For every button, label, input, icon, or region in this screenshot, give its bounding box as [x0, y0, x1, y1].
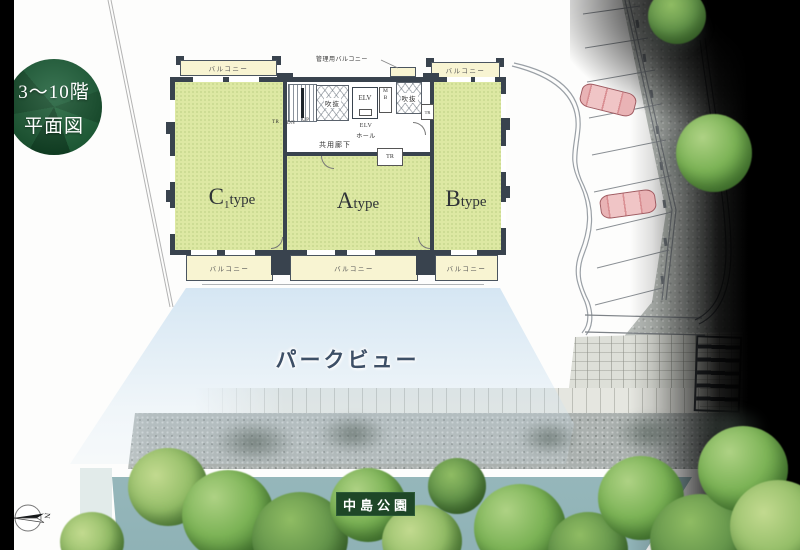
balcony-top-right: バルコニー — [431, 62, 500, 78]
trunk-room-label: TR — [425, 110, 431, 115]
interior-wall — [283, 82, 287, 250]
unit-letter: A — [337, 188, 354, 213]
corridor-wall — [287, 152, 430, 156]
meter-box-label: M — [380, 88, 391, 95]
door-arc — [413, 122, 426, 135]
compass-n-label: N — [42, 512, 52, 519]
elevator-label: ELV — [359, 94, 372, 102]
park-name-badge: 中島公園 — [336, 492, 415, 516]
balcony-label: バルコニー — [210, 263, 250, 273]
trunk-room: TR — [377, 148, 403, 166]
balcony-bottom-a: バルコニー — [290, 255, 418, 281]
floor-badge-line2: 平面図 — [24, 111, 84, 138]
elevator: ELV — [352, 87, 378, 119]
void-label: 吹抜 — [401, 93, 418, 103]
left-edge-matte — [0, 0, 14, 550]
floor-plan: バルコニー バルコニー 管理用バルコニー TR DN UP — [168, 53, 516, 305]
void-atrium: 吹抜 — [316, 85, 349, 121]
corridor-label: 共用廊下 — [303, 140, 367, 150]
balcony-label: バルコニー — [446, 65, 486, 75]
floor-badge-line1: 3〜10階 — [18, 77, 90, 104]
stair-tr-label: TR — [272, 120, 279, 125]
management-balcony — [390, 67, 416, 77]
unit-letter: B — [445, 186, 460, 211]
north-compass-icon: N — [10, 500, 58, 538]
unit-label-c1type: C1type — [185, 184, 279, 211]
balcony-label: バルコニー — [334, 263, 374, 273]
unit-suffix: type — [353, 196, 379, 212]
tree-shadow — [212, 420, 296, 464]
tree-shadow — [518, 420, 580, 456]
elv-hall-label-1: ELV — [345, 123, 387, 129]
balcony-label: バルコニー — [447, 263, 487, 273]
building-outline: TR DN UP 吹抜 吹抜 ELV M B TR ELV — [170, 77, 506, 255]
park-view-label: パークビュー — [250, 344, 445, 374]
site-plan-illustration: パークビュー 中島公園 3〜10階 平面図 N バルコニー バルコニー 管理用バ… — [0, 0, 800, 550]
trunk-room-side: TR — [421, 104, 434, 120]
void-atrium: 吹抜 — [396, 82, 422, 114]
property-boundary-line — [108, 0, 173, 307]
stair-dn-label: DN — [287, 121, 295, 126]
stair-rail — [301, 88, 304, 118]
balcony-label: バルコニー — [209, 63, 249, 73]
elv-hall-label-2: ホール — [345, 131, 387, 140]
meter-box: M B — [379, 87, 392, 113]
tree — [676, 114, 752, 192]
trunk-room-label: TR — [386, 154, 394, 160]
balcony-bottom-c1: バルコニー — [186, 255, 273, 281]
unit-c1type-room — [175, 82, 283, 250]
unit-btype-room — [434, 82, 501, 250]
stair-up-label: UP — [302, 118, 309, 123]
balcony-bottom-b: バルコニー — [435, 255, 498, 281]
unit-suffix: type — [230, 192, 256, 208]
unit-label-atype: Atype — [303, 188, 413, 215]
unit-letter: C — [209, 184, 224, 209]
floor-badge: 3〜10階 平面図 — [6, 59, 102, 155]
balcony-top-left: バルコニー — [180, 60, 277, 76]
tree-shadow — [612, 412, 684, 454]
void-label: 吹抜 — [324, 98, 341, 108]
staircase — [288, 84, 317, 122]
tree — [428, 458, 486, 514]
unit-suffix: type — [461, 194, 487, 210]
balcony-edge-line — [202, 284, 484, 285]
management-balcony-label: 管理用バルコニー — [316, 54, 368, 63]
elevator-door — [359, 109, 372, 116]
tree-shadow — [318, 414, 388, 454]
unit-label-btype: Btype — [431, 186, 501, 213]
meter-box-label: B — [380, 95, 391, 102]
